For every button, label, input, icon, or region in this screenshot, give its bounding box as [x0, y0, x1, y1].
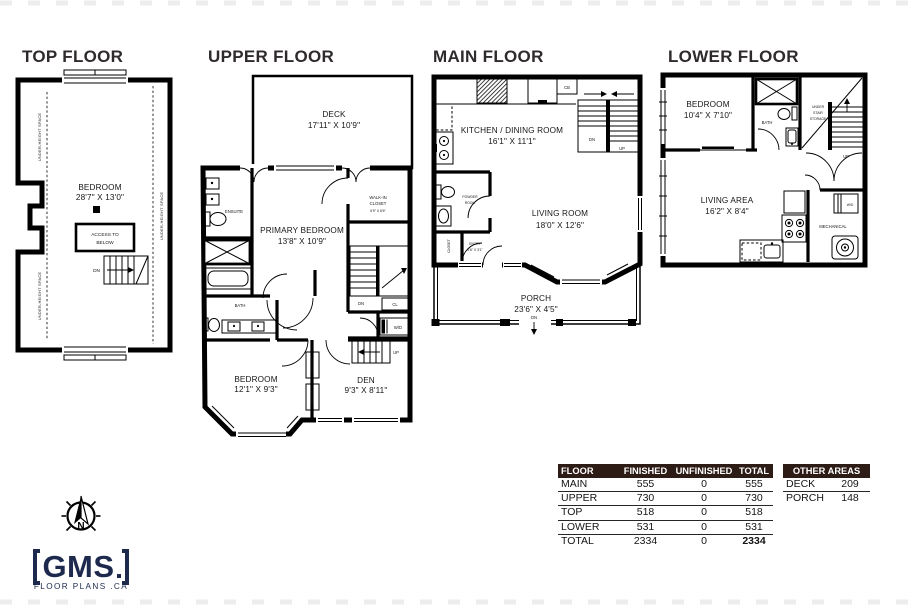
storage-label-3: STORAGE: [810, 117, 827, 121]
living-room-label: LIVING ROOM: [532, 209, 588, 218]
other-area-row: PORCH148: [783, 492, 870, 505]
main-stairs: [578, 91, 638, 152]
logo-tagline: FLOOR PLANS .CA: [22, 582, 140, 591]
lower-bedroom-label: BEDROOM: [686, 100, 729, 109]
walkin-label-2: CLOSET: [370, 201, 387, 206]
upper-closet-cl: CL: [382, 298, 408, 310]
upper-dn-label: DN: [358, 301, 364, 306]
logo-bracket-right: [122, 549, 129, 585]
lower-floor-title: LOWER FLOOR: [668, 47, 799, 66]
lower-bath-door: [757, 129, 779, 154]
mechanical-label: MECHANICAL: [819, 224, 847, 229]
access-label-2: BELOW: [96, 240, 114, 246]
main-right-window: [636, 196, 644, 232]
header-finished: FINISHED: [618, 464, 673, 478]
logo-brand-row: GMS: [22, 547, 140, 587]
under-height-label-1: UNDER-HEIGHT SPACE: [37, 113, 42, 162]
compass-icon: N: [58, 492, 104, 540]
top-floor-plan: TOP FLOOR UNDER-HEIGHT SPACE UNDER-HEIGH…: [18, 47, 170, 360]
upper-wd-label: W/D: [394, 325, 402, 330]
lower-hall-arc-1: [806, 153, 834, 181]
living-area-dim: 16'2" X 8'4": [705, 207, 749, 216]
den-dim: 9'3" X 8'11": [345, 386, 388, 395]
lower-left-windows: [658, 88, 668, 256]
floor-area-table: FLOOR FINISHED UNFINISHED TOTAL MAIN5550…: [558, 464, 773, 548]
upper-bath-fixtures: [204, 318, 276, 333]
cabinet-cb: CB: [557, 79, 577, 94]
lower-bedroom-dim: 10'4" X 7'10": [684, 111, 732, 120]
upper-floor-title: UPPER FLOOR: [208, 47, 334, 66]
table-row: UPPER7300730: [558, 492, 773, 506]
floor-table-header: FLOOR FINISHED UNFINISHED TOTAL: [558, 464, 773, 478]
logo-bracket-left: [33, 549, 40, 585]
kitchen-sink-left: [433, 132, 453, 164]
lower-bath-fixtures: [778, 107, 798, 146]
porch-dim: 23'6" X 4'5": [514, 305, 558, 314]
hall-door-arc-1: [283, 298, 313, 328]
storage-label-2: STAIR: [813, 111, 823, 115]
cl-label: CL: [392, 302, 398, 307]
other-area-row: DECK209: [783, 478, 870, 492]
logo-brand: GMS: [40, 549, 116, 585]
header-floor: FLOOR: [558, 464, 618, 478]
deck-dim: 17'11" X 10'9": [308, 121, 360, 130]
under-height-label-2: UNDER-HEIGHT SPACE: [37, 272, 42, 321]
porch-dn-label: DN: [531, 315, 537, 320]
upper-bedroom-dim: 12'1" X 9'3": [234, 385, 278, 394]
primary-bedroom-label: PRIMARY BEDROOM: [260, 226, 344, 235]
powder-fixtures: [436, 185, 455, 226]
other-areas-table: OTHER AREAS DECK209 PORCH148: [783, 464, 870, 505]
deck-door-left: [240, 164, 268, 182]
deck-label: DECK: [322, 110, 346, 119]
powder-label-1: POWDER: [462, 195, 478, 199]
access-label-1: ACCESS TO: [91, 232, 119, 238]
top-window-north: [62, 70, 128, 86]
header-unfinished: UNFINISHED: [673, 464, 735, 478]
top-bedroom-label: BEDROOM: [78, 183, 121, 192]
table-row: MAIN5550555: [558, 478, 773, 492]
fridge-dashed: [436, 104, 452, 130]
main-dn-label: DN: [589, 137, 595, 142]
top-window-south: [62, 344, 128, 360]
walkin-dim: 6'9" X 6'6": [370, 209, 386, 213]
lower-wd-label: W/D: [847, 203, 854, 207]
cb-label: CB: [564, 85, 570, 90]
deck-window: [274, 164, 336, 172]
living-area-label: LIVING AREA: [701, 196, 754, 205]
closet-label-1: CLOSET: [311, 358, 315, 372]
logo-period: [117, 574, 121, 578]
top-dn-label: DN: [93, 268, 100, 274]
table-row: TOP5180518: [558, 506, 773, 520]
kitchen-sink-top: [528, 79, 557, 103]
top-floor-title: TOP FLOOR: [22, 47, 123, 66]
storage-label-1: UNDER: [812, 105, 825, 109]
furnace: [832, 236, 858, 259]
main-floor-plan: MAIN FLOOR CB KITCHEN / DINING ROOM 16'1…: [432, 47, 645, 335]
living-room-dim: 18'0" X 12'6": [536, 221, 584, 230]
upper-up-label: UP: [393, 350, 399, 355]
ensuite-label: ENSUITE: [225, 209, 243, 214]
hall-door-arc-2: [267, 300, 297, 330]
lower-shower: [756, 79, 797, 104]
mechanical-door-arc: [805, 175, 820, 190]
top-bedroom-dim: 28'7" X 13'0": [76, 193, 124, 202]
gms-logo: N GMS FLOOR PLANS .CA: [22, 492, 140, 591]
den-label: DEN: [357, 376, 375, 385]
porch-label: PORCH: [521, 294, 551, 303]
ensuite-shower: [204, 240, 250, 264]
table-total-row: TOTAL233402334: [558, 535, 773, 548]
chimney-marker: [93, 206, 100, 213]
stove: [477, 79, 507, 103]
main-closet-label: CLOSET: [447, 239, 451, 253]
table-row: LOWER5310531: [558, 521, 773, 535]
main-up-label: UP: [619, 146, 625, 151]
header-total: TOTAL: [735, 464, 773, 478]
bathtub: [204, 268, 252, 289]
lower-floor-plan: LOWER FLOOR BEDROOM 10'4" X 7'10": [658, 47, 865, 265]
lower-bath-label: BATH: [762, 120, 773, 125]
den-door-arc: [326, 340, 350, 364]
under-height-label-3: UNDER-HEIGHT SPACE: [159, 192, 164, 241]
closet-label-2: CLOSET: [311, 390, 315, 404]
upper-floor-plan: UPPER FLOOR DECK 17'11" X 10'9": [203, 47, 412, 439]
powder-label-2: ROOM: [465, 201, 476, 205]
access-to-below-box: ACCESS TO BELOW: [76, 224, 134, 251]
primary-bedroom-dim: 13'8" X 10'9": [278, 237, 326, 246]
upper-washer-dryer: W/D: [360, 318, 408, 336]
upper-bedroom-label: BEDROOM: [234, 375, 277, 384]
walkin-door: [322, 178, 351, 204]
main-floor-title: MAIN FLOOR: [433, 47, 544, 66]
entry-dim: 4'6" X 3'1": [467, 248, 483, 252]
upper-stairs-dn: [350, 246, 408, 296]
upper-stairs-up: [352, 341, 390, 363]
walkin-label-1: WALK-IN: [369, 195, 386, 200]
lower-washer-dryer: W/D: [834, 194, 858, 213]
floor-plan-sheet: TOP FLOOR UNDER-HEIGHT SPACE UNDER-HEIGH…: [0, 0, 910, 606]
kitchen-dim: 16'1" X 11'1": [488, 137, 536, 146]
compass-north-label: N: [77, 521, 84, 532]
other-areas-header: OTHER AREAS: [783, 464, 870, 478]
entry-closet-door-arc: [462, 243, 482, 263]
lower-stairs: [828, 98, 864, 150]
top-stairs: [104, 256, 148, 284]
ensuite-fixtures: [205, 178, 226, 226]
upper-bath-label: BATH: [235, 303, 246, 308]
kitchen-label: KITCHEN / DINING ROOM: [461, 126, 563, 135]
bedroom-door-arc: [282, 340, 308, 366]
